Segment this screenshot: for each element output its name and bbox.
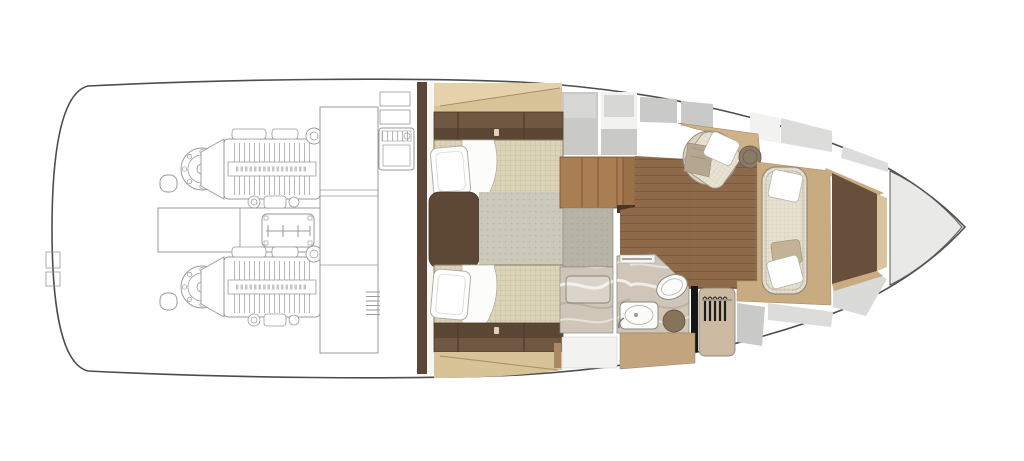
stool [663, 310, 685, 332]
corridor-floor [563, 208, 613, 267]
overhead-shelf-top [434, 83, 562, 112]
bow-trim-right [877, 194, 887, 271]
twin-bed-lower [430, 265, 563, 326]
yacht-floor-plan [0, 0, 1024, 461]
shower [560, 267, 613, 333]
nightstand [429, 192, 479, 268]
overhead-cabinets-top [434, 112, 563, 142]
bow-deck [890, 171, 962, 285]
tank-box [158, 208, 320, 252]
floor-plan-canvas [0, 0, 1024, 461]
shower-tray [566, 276, 610, 303]
bulkhead [417, 82, 427, 374]
service-column [320, 107, 378, 353]
sink [619, 302, 658, 329]
vanity-cabinet [620, 333, 695, 369]
guest-cabin [429, 83, 563, 378]
bow-section [824, 168, 962, 316]
overhead-cabinets-bottom [434, 323, 563, 352]
wardrobe [699, 288, 735, 356]
sofa-pillow-white-top [767, 169, 803, 203]
pillow [430, 269, 471, 321]
companionway-stairs [560, 157, 635, 208]
pillow [430, 145, 471, 197]
sofa [762, 167, 807, 294]
generator [379, 128, 414, 170]
